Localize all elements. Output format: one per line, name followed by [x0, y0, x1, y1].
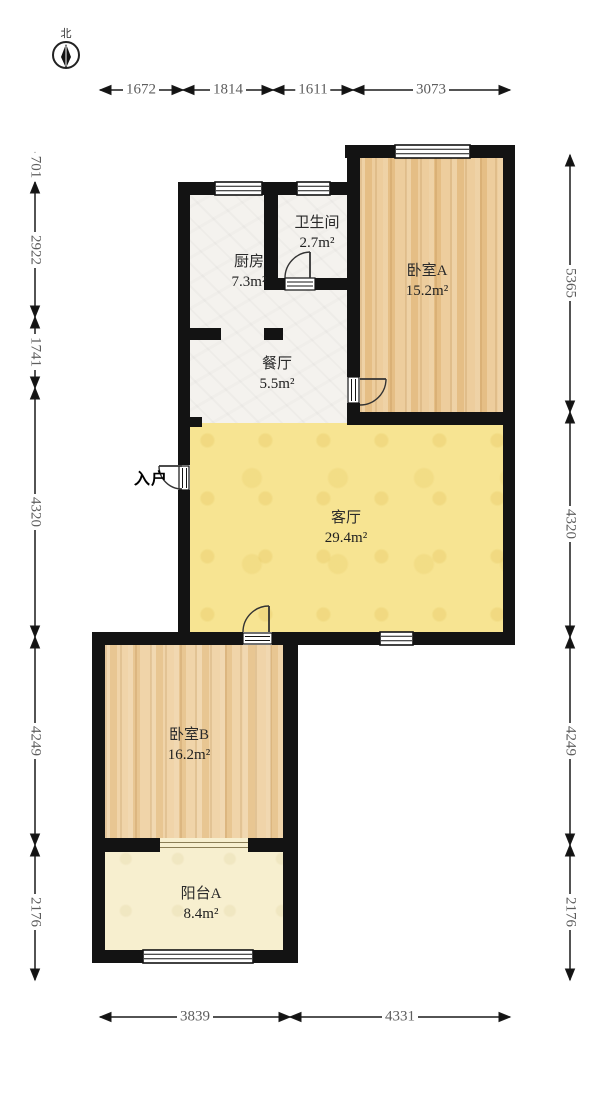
compass-north-label: 北 — [61, 25, 72, 41]
dining-name: 餐厅 — [260, 354, 295, 374]
bedroom-a-area: 15.2m² — [406, 281, 448, 301]
balcony-area: 8.4m² — [181, 904, 222, 924]
bedroom-b-label: 卧室B 16.2m² — [168, 725, 210, 766]
dim-left-4: 4320 — [27, 494, 44, 530]
dim-bottom-2: 4331 — [382, 1009, 418, 1026]
dim-top-1: 1672 — [123, 82, 159, 99]
kitchen-area: 7.3m² — [232, 272, 267, 292]
dim-bottom-1: 3839 — [177, 1009, 213, 1026]
bedroom-b-name: 卧室B — [168, 725, 210, 745]
bathroom-name: 卫生间 — [294, 213, 339, 233]
balcony-window-icon — [143, 950, 253, 963]
dim-right-4: 2176 — [562, 894, 579, 930]
bedroom-a-label: 卧室A 15.2m² — [406, 261, 448, 302]
dim-top-2: 1814 — [210, 82, 246, 99]
dim-left-5: 4249 — [27, 723, 44, 759]
entrance-label: 入户 — [134, 465, 168, 489]
bathroom-area: 2.7m² — [294, 233, 339, 253]
plan-overlay — [0, 0, 608, 1111]
dim-right-2: 4320 — [562, 506, 579, 542]
living-area: 29.4m² — [325, 528, 367, 548]
left-dimension-line — [31, 153, 40, 980]
dim-left-1: 701 — [27, 153, 44, 182]
bottom-dimension-line — [100, 1013, 510, 1022]
compass-icon — [53, 42, 79, 68]
dining-label: 餐厅 5.5m² — [260, 354, 295, 395]
bedroom-a-name: 卧室A — [406, 261, 448, 281]
dim-top-4: 3073 — [413, 82, 449, 99]
bedroom-b-door — [243, 606, 272, 644]
dim-right-1: 5365 — [562, 265, 579, 301]
bathroom-window-icon — [297, 182, 330, 195]
balcony-label: 阳台A 8.4m² — [181, 884, 222, 925]
dim-left-2: 2922 — [27, 232, 44, 268]
dim-left-3: 1741 — [27, 334, 44, 370]
kitchen-label: 厨房 7.3m² — [232, 252, 267, 293]
dim-right-3: 4249 — [562, 723, 579, 759]
balcony-name: 阳台A — [181, 884, 222, 904]
bedroom-a-window-icon — [395, 145, 470, 158]
bathroom-label: 卫生间 2.7m² — [294, 213, 339, 254]
kitchen-window-icon — [215, 182, 262, 195]
bedroom-b-area: 16.2m² — [168, 745, 210, 765]
dining-area: 5.5m² — [260, 374, 295, 394]
living-room-window-icon — [380, 632, 413, 645]
dim-top-3: 1611 — [295, 82, 330, 99]
bedroom-a-door — [348, 377, 386, 405]
living-name: 客厅 — [325, 508, 367, 528]
balcony-opening — [160, 839, 248, 851]
bathroom-door — [285, 252, 315, 290]
floor-plan: 北 1672 1814 1611 3073 701 2922 1741 4320… — [0, 0, 608, 1111]
living-label: 客厅 29.4m² — [325, 508, 367, 549]
dim-left-6: 2176 — [27, 894, 44, 930]
kitchen-name: 厨房 — [232, 252, 267, 272]
